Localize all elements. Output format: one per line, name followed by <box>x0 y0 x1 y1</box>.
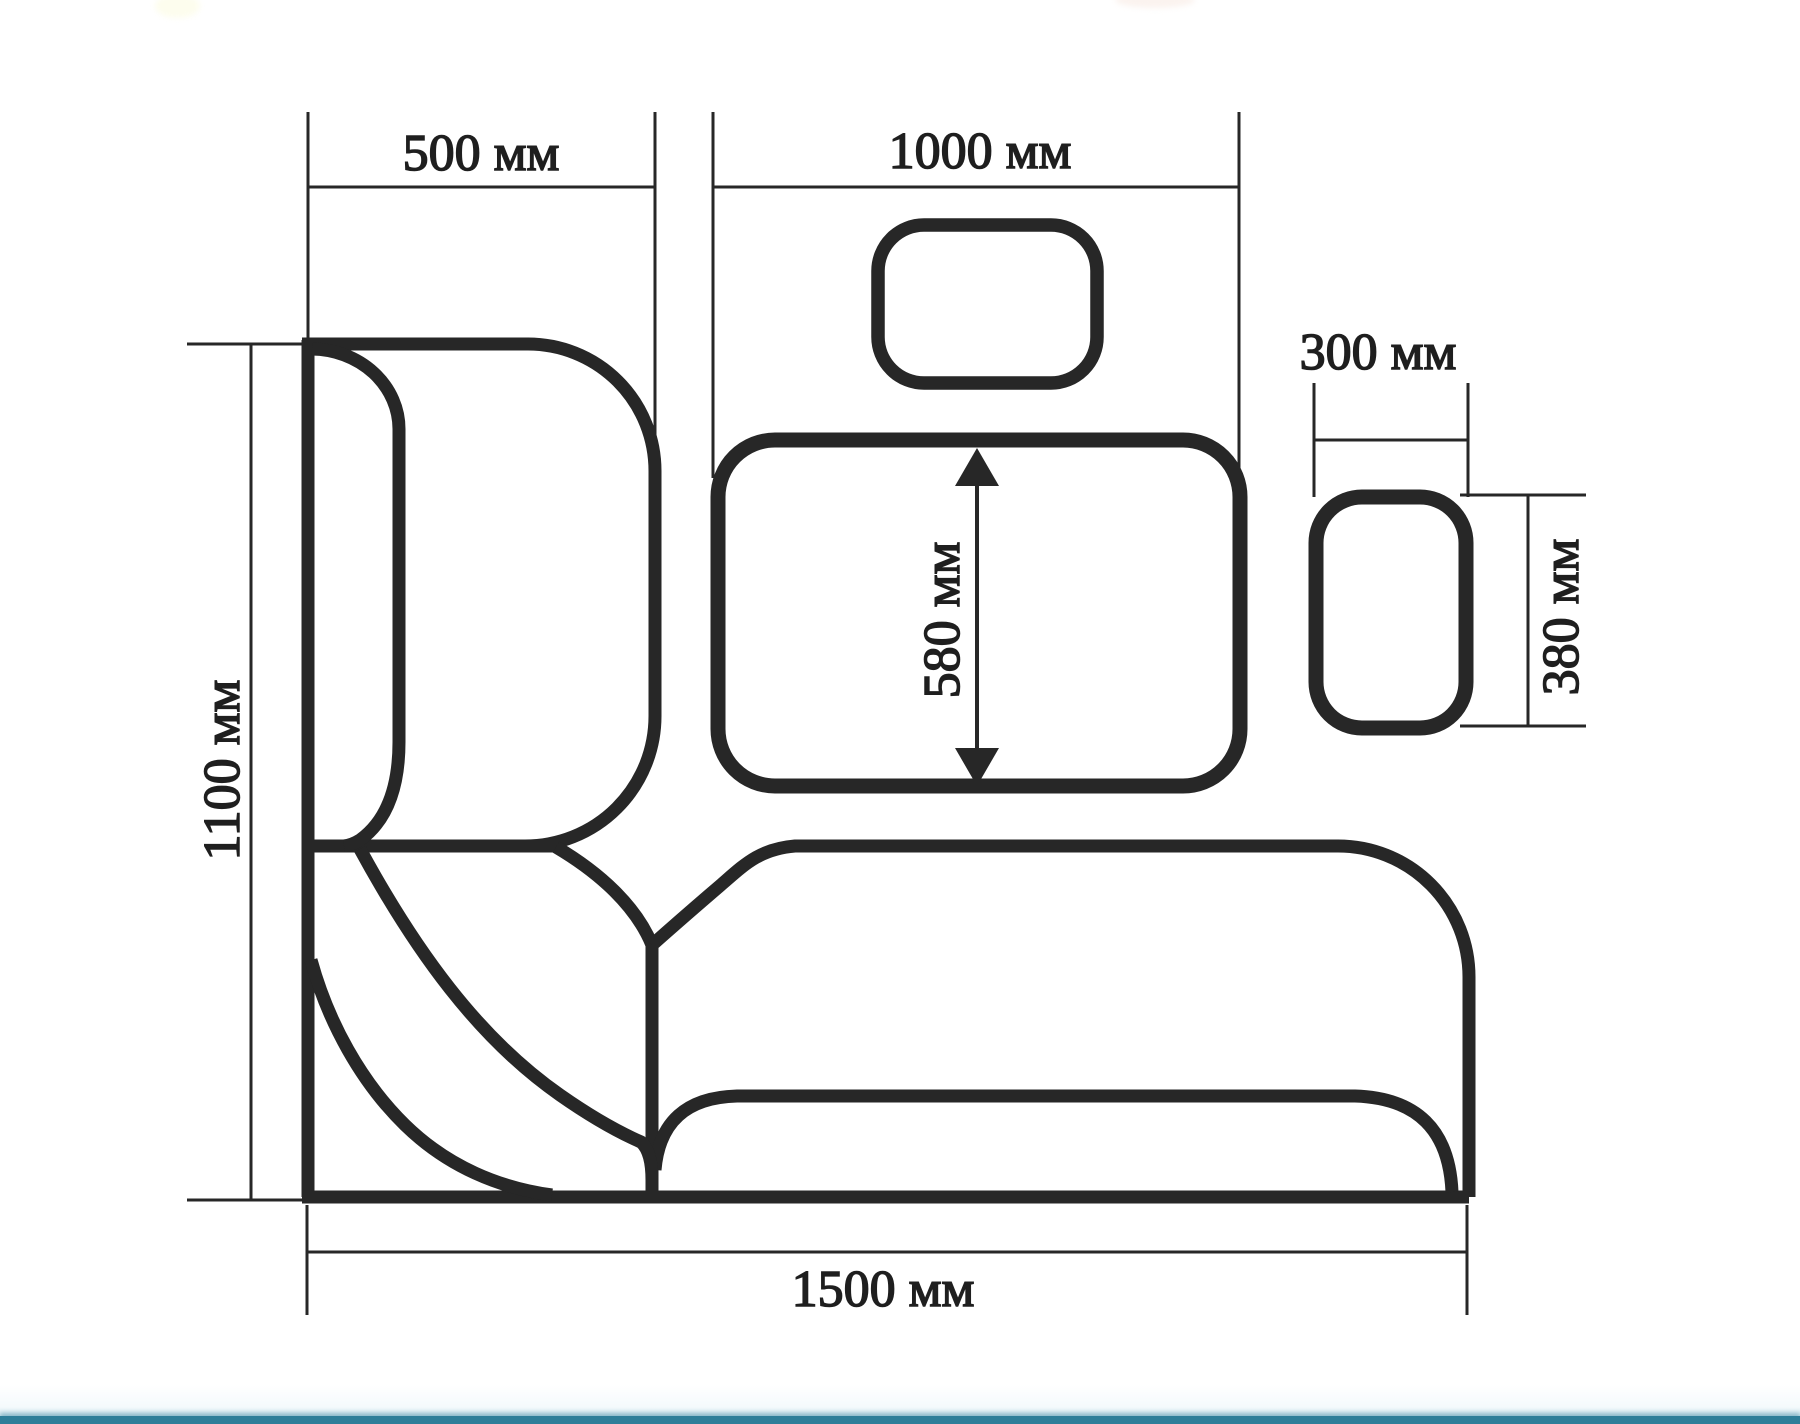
svg-text:380 мм: 380 мм <box>1533 539 1590 696</box>
svg-text:580 мм: 580 мм <box>914 542 971 699</box>
svg-text:1500 мм: 1500 мм <box>792 1261 975 1318</box>
svg-text:300 мм: 300 мм <box>1300 324 1457 381</box>
svg-text:1100 мм: 1100 мм <box>194 680 251 861</box>
svg-text:1000 мм: 1000 мм <box>889 123 1072 180</box>
svg-text:500 мм: 500 мм <box>403 125 560 182</box>
